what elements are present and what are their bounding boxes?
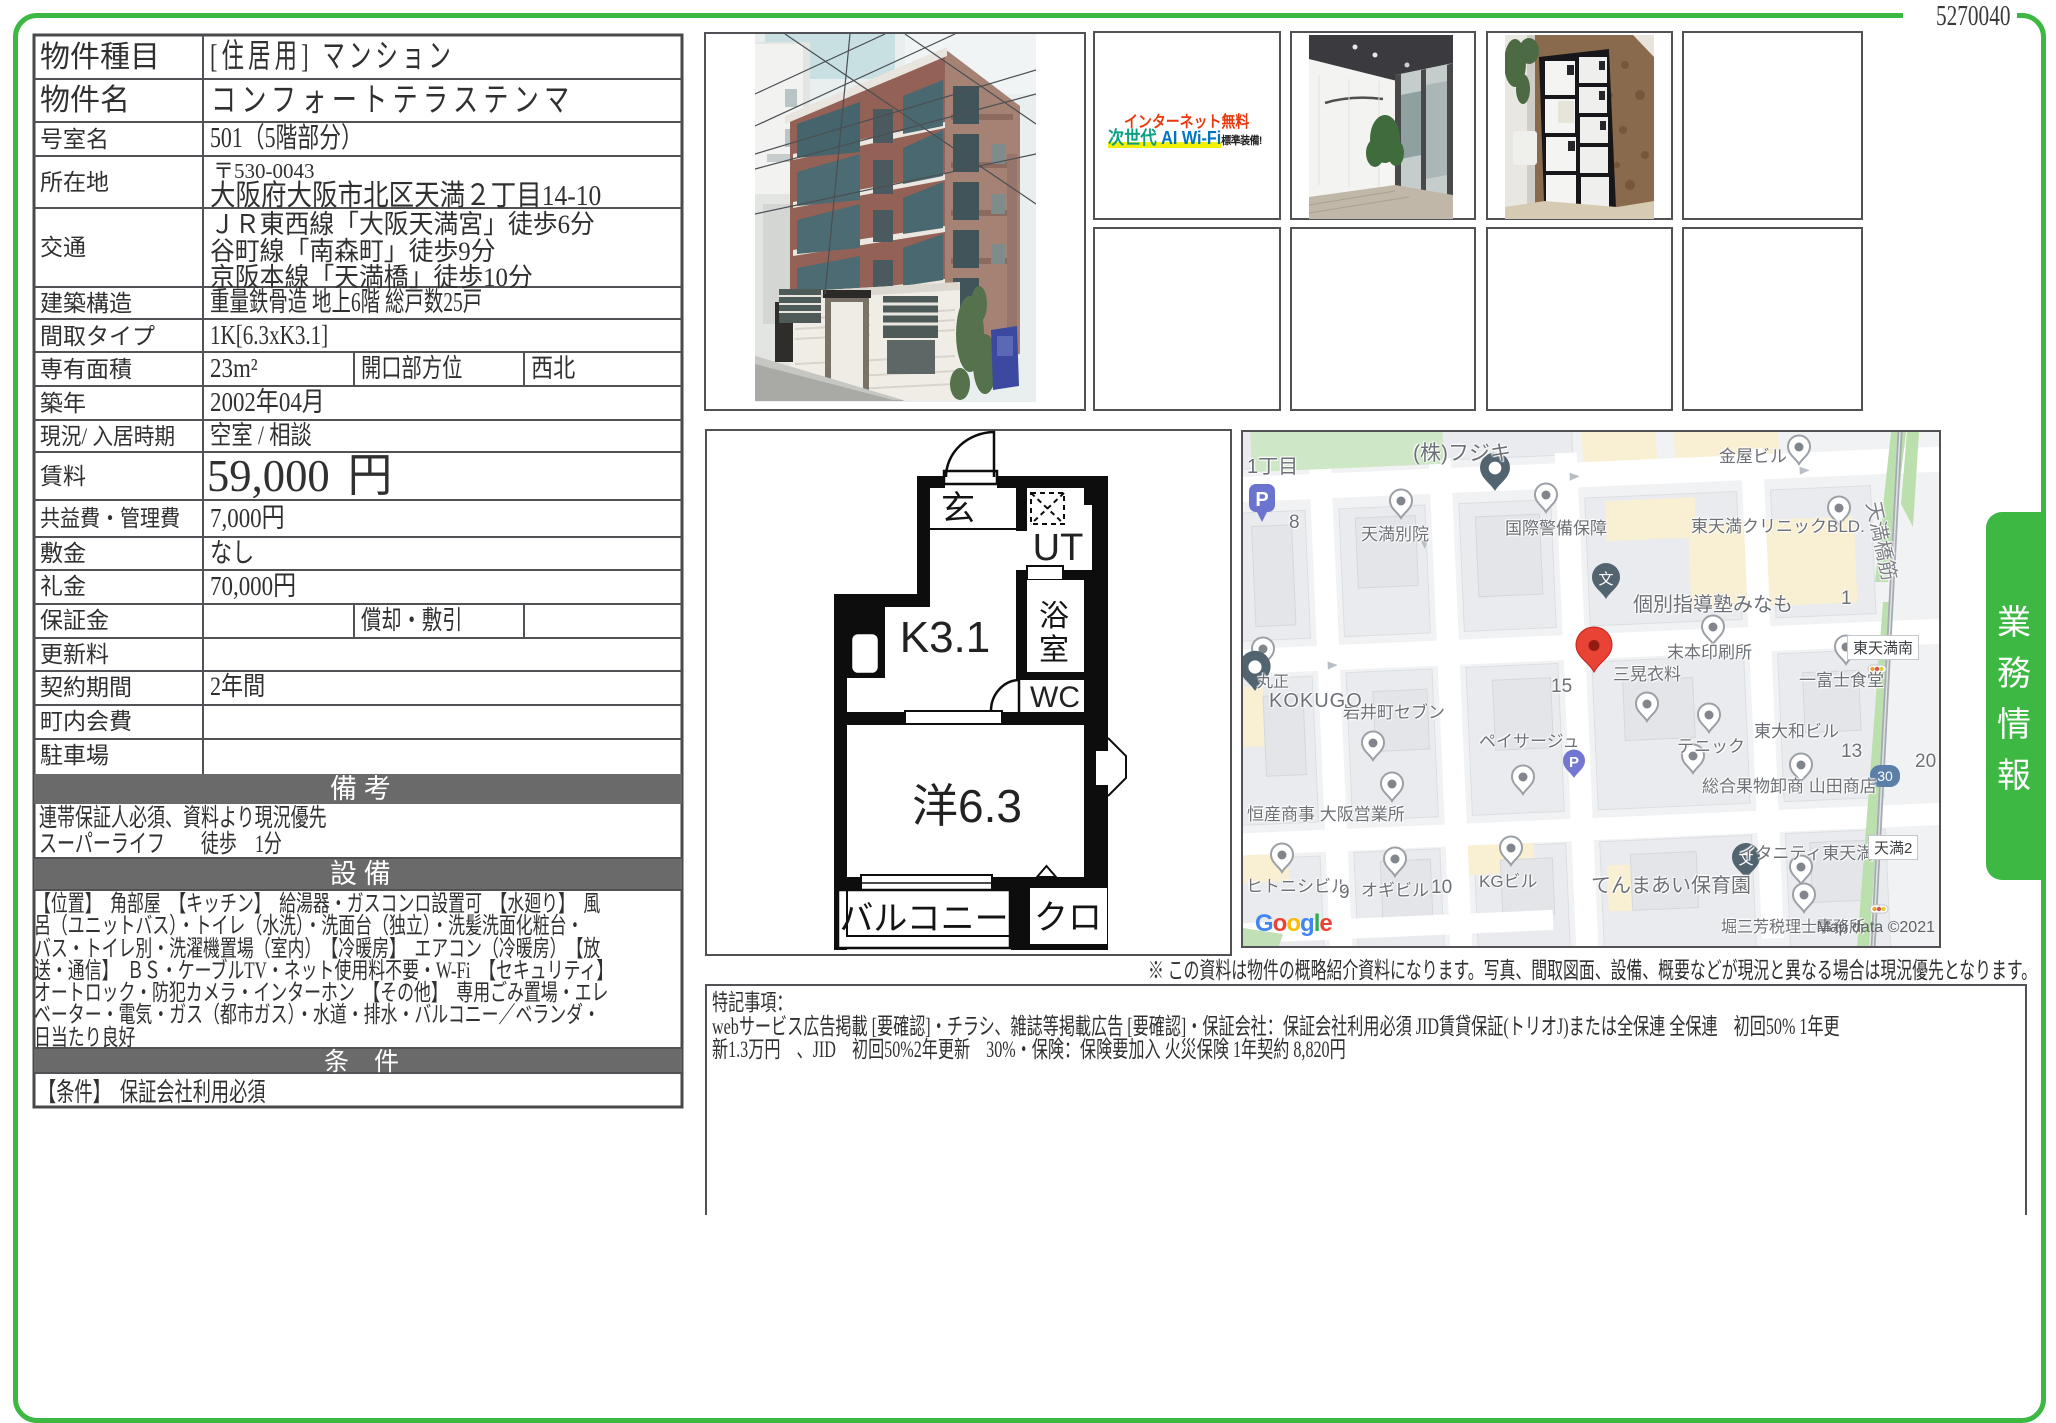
- svg-text:玄: 玄: [941, 490, 975, 528]
- svg-text:30: 30: [1877, 768, 1893, 784]
- svg-text:WC: WC: [1030, 681, 1080, 714]
- svg-text:浴: 浴: [1039, 600, 1069, 633]
- svg-text:バルコニー: バルコニー: [839, 900, 1008, 938]
- svg-text:K3.1: K3.1: [900, 613, 991, 662]
- svg-text:P: P: [1569, 754, 1579, 771]
- svg-text:P: P: [1255, 489, 1268, 511]
- svg-text:室: 室: [1039, 634, 1069, 667]
- svg-text:クロ: クロ: [1034, 899, 1102, 937]
- svg-text:UT: UT: [1033, 527, 1084, 569]
- svg-text:洋6.3: 洋6.3: [912, 780, 1022, 832]
